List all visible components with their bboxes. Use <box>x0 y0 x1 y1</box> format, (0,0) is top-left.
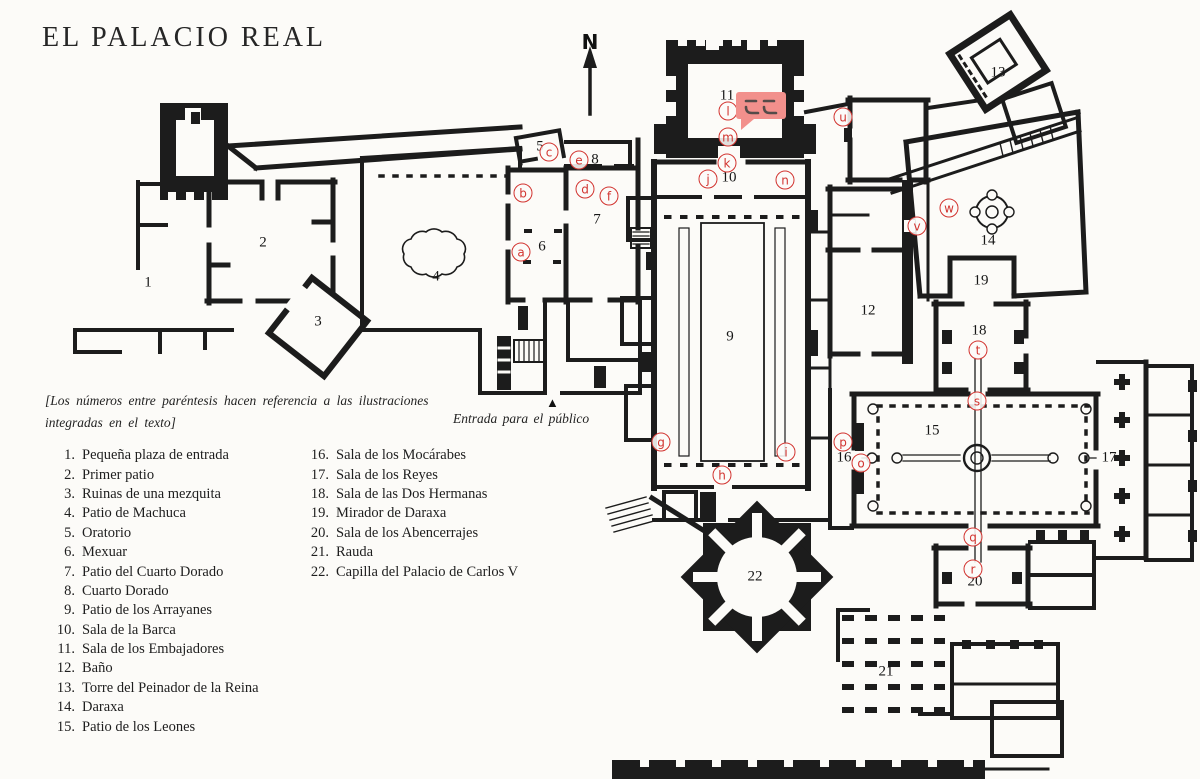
legend-item-number: 22. <box>302 564 329 581</box>
rauda-ruins <box>838 610 952 714</box>
legend-item-label: Sala de los Abencerrajes <box>336 525 478 542</box>
legend-item: 12.Baño <box>48 659 259 678</box>
legend-item-number: 13. <box>48 680 75 697</box>
legend-column-1: 1.Pequeña plaza de entrada2.Primer patio… <box>48 446 259 737</box>
room-number-7: 7 <box>593 213 601 228</box>
legend-item-label: Sala de las Dos Hermanas <box>336 486 487 503</box>
legend-item: 22.Capilla del Palacio de Carlos V <box>302 562 518 581</box>
room-number-2: 2 <box>259 236 267 251</box>
legend-item-number: 19. <box>302 505 329 522</box>
legend-item-number: 4. <box>48 505 75 522</box>
legend-item: 20.Sala de los Abencerrajes <box>302 524 518 543</box>
room-number-12: 12 <box>861 304 876 319</box>
legend-item: 17.Sala de los Reyes <box>302 465 518 484</box>
letter-marker-h: h <box>713 466 732 485</box>
room-number-3: 3 <box>314 315 322 330</box>
legend-item-number: 18. <box>302 486 329 503</box>
legend-item: 7.Patio del Cuarto Dorado <box>48 562 259 581</box>
north-arrow-icon <box>583 46 597 114</box>
letter-marker-j: j <box>699 170 718 189</box>
legend-item: 16.Sala de los Mocárabes <box>302 446 518 465</box>
upper-right <box>806 15 1080 193</box>
legend-item-number: 6. <box>48 544 75 561</box>
legend-item: 11.Sala de los Embajadores <box>48 640 259 659</box>
room-number-1: 1 <box>144 276 152 291</box>
legend-item: 21.Rauda <box>302 543 518 562</box>
letter-marker-l: l <box>719 102 738 121</box>
letter-marker-d: d <box>576 180 595 199</box>
letter-marker-w: w <box>940 199 959 218</box>
room-number-8: 8 <box>591 153 599 168</box>
legend-item-label: Ruinas de una mezquita <box>82 486 221 503</box>
legend-item-number: 7. <box>48 564 75 581</box>
room-number-18: 18 <box>972 324 987 339</box>
room-number-10: 10 <box>722 171 737 186</box>
legend-item: 2.Primer patio <box>48 465 259 484</box>
legend-item-label: Primer patio <box>82 467 154 484</box>
legend-item-number: 11. <box>48 641 75 658</box>
letter-marker-e: e <box>570 151 589 170</box>
daraxa-fountain <box>976 196 1008 228</box>
legend-item: 8.Cuarto Dorado <box>48 582 259 601</box>
letter-marker-u: u <box>834 108 853 127</box>
koko-annotation-bubble <box>736 92 786 119</box>
daraxa-garden <box>906 112 1086 296</box>
north-label: N <box>574 30 606 54</box>
legend-item-label: Mexuar <box>82 544 127 561</box>
bath-block <box>828 180 928 364</box>
room-number-14: 14 <box>981 234 996 249</box>
letter-marker-s: s <box>968 392 987 411</box>
legend-item-number: 14. <box>48 699 75 716</box>
legend-item-number: 20. <box>302 525 329 542</box>
legend-item: 9.Patio de los Arrayanes <box>48 601 259 620</box>
legend-item-label: Pequeña plaza de entrada <box>82 447 229 464</box>
legend-item: 15.Patio de los Leones <box>48 717 259 736</box>
legend-item-label: Patio de los Leones <box>82 719 195 736</box>
legend-item-number: 2. <box>48 467 75 484</box>
entrance-marker: ▲ <box>546 395 559 411</box>
room-number-9: 9 <box>726 330 734 345</box>
legend-item-number: 15. <box>48 719 75 736</box>
legend-item-label: Daraxa <box>82 699 124 716</box>
chapel-carlos-v <box>606 492 833 653</box>
koko-text-icon <box>744 97 778 115</box>
legend-item-number: 17. <box>302 467 329 484</box>
letter-marker-n: n <box>776 171 795 190</box>
legend-item-label: Patio del Cuarto Dorado <box>82 564 223 581</box>
letter-marker-g: g <box>652 433 671 452</box>
letter-marker-t: t <box>969 341 988 360</box>
room-number-22: 22 <box>748 570 763 585</box>
letter-marker-a: a <box>512 243 531 262</box>
letter-marker-c: c <box>540 143 559 162</box>
legend-item-label: Patio de los Arrayanes <box>82 602 212 619</box>
room-number-13: 13 <box>991 66 1006 81</box>
legend-item: 4.Patio de Machuca <box>48 504 259 523</box>
southeast-building <box>952 640 1062 756</box>
letter-marker-m: m <box>719 128 738 147</box>
legend-item-number: 21. <box>302 544 329 561</box>
room-number-21: 21 <box>879 665 894 680</box>
legend-item-number: 9. <box>48 602 75 619</box>
room-number-4: 4 <box>432 270 440 285</box>
legend-item-number: 5. <box>48 525 75 542</box>
parentheses-note: [Los números entre paréntesis hacen refe… <box>45 390 475 433</box>
page-title: EL PALACIO REAL <box>42 22 326 54</box>
legend-item: 18.Sala de las Dos Hermanas <box>302 485 518 504</box>
room-number-16: 16 <box>837 451 852 466</box>
legend-item-label: Rauda <box>336 544 373 561</box>
legend-item-number: 1. <box>48 447 75 464</box>
scanned-page: EL PALACIO REAL N [Los números entre par… <box>0 0 1200 779</box>
legend-item: 6.Mexuar <box>48 543 259 562</box>
peinador-tower <box>950 15 1046 110</box>
legend-item-label: Mirador de Daraxa <box>336 505 446 522</box>
legend-item: 1.Pequeña plaza de entrada <box>48 446 259 465</box>
room-number-19: 19 <box>974 274 989 289</box>
letter-marker-o: o <box>852 454 871 473</box>
letter-marker-p: p <box>834 433 853 452</box>
letter-marker-k: k <box>718 154 737 173</box>
legend-column-2: 16.Sala de los Mocárabes17.Sala de los R… <box>302 446 518 582</box>
left-complex <box>75 103 545 393</box>
legend-item-label: Capilla del Palacio de Carlos V <box>336 564 518 581</box>
legend-item: 10.Sala de la Barca <box>48 621 259 640</box>
letter-marker-f: f <box>600 187 619 206</box>
room-number-15: 15 <box>925 424 940 439</box>
room-number-6: 6 <box>538 240 546 255</box>
legend-item: 19.Mirador de Daraxa <box>302 504 518 523</box>
room-number-17: 17 <box>1102 451 1117 466</box>
legend-item-label: Oratorio <box>82 525 131 542</box>
letter-marker-b: b <box>514 184 533 203</box>
legend-item: 13.Torre del Peinador de la Reina <box>48 679 259 698</box>
legend-item-number: 8. <box>48 583 75 600</box>
legend-item-number: 12. <box>48 660 75 677</box>
lion-fountain <box>964 445 990 471</box>
letter-marker-v: v <box>908 217 927 236</box>
legend-item: 5.Oratorio <box>48 524 259 543</box>
legend-item-label: Sala de la Barca <box>82 622 176 639</box>
legend-item-number: 16. <box>302 447 329 464</box>
letter-marker-q: q <box>964 528 983 547</box>
patio-leones <box>830 362 1197 560</box>
legend-item: 3.Ruinas de una mezquita <box>48 485 259 504</box>
legend-item-label: Patio de Machuca <box>82 505 186 522</box>
legend-item: 14.Daraxa <box>48 698 259 717</box>
letter-marker-i: i <box>777 443 796 462</box>
entrance-label: Entrada para el público <box>453 411 589 427</box>
legend-item-label: Sala de los Mocárabes <box>336 447 466 464</box>
legend-item-label: Sala de los Embajadores <box>82 641 224 658</box>
legend-item-label: Cuarto Dorado <box>82 583 169 600</box>
legend-item-label: Torre del Peinador de la Reina <box>82 680 259 697</box>
legend-item-label: Sala de los Reyes <box>336 467 438 484</box>
legend-item-number: 10. <box>48 622 75 639</box>
letter-marker-r: r <box>964 560 983 579</box>
legend-item-number: 3. <box>48 486 75 503</box>
bottom-wall-band <box>612 760 1048 779</box>
legend-item-label: Baño <box>82 660 113 677</box>
abencerrajes-block <box>934 530 1094 608</box>
